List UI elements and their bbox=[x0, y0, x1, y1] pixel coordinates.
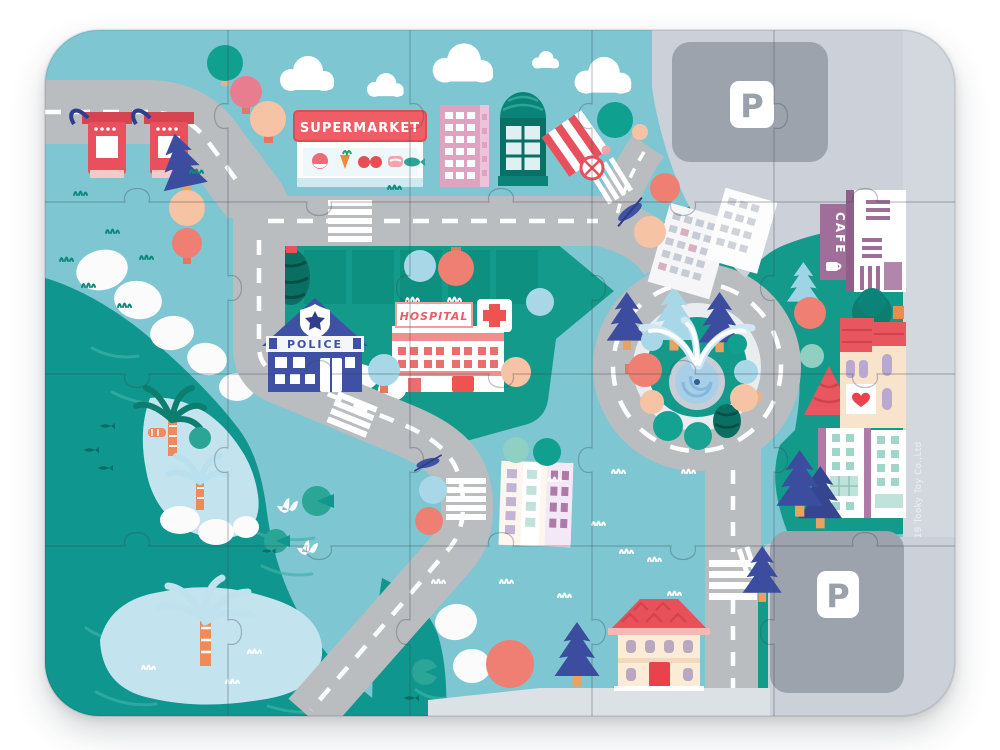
cafe-building: CAFE bbox=[820, 190, 906, 292]
tree-icon bbox=[503, 437, 529, 463]
apartment-building bbox=[498, 461, 573, 547]
parking-lot-bottom: P bbox=[758, 531, 957, 716]
dome-tower-building bbox=[498, 92, 548, 186]
cafe-sign-text: CAFE bbox=[833, 212, 847, 255]
tree-icon bbox=[438, 250, 474, 286]
city-map-puzzle: P © 2019 Tooky Toy Co.,Ltd P bbox=[0, 0, 1000, 750]
roundabout bbox=[607, 283, 781, 451]
tree-icon bbox=[794, 297, 826, 329]
tree-icon bbox=[650, 173, 680, 203]
tree-icon bbox=[404, 250, 436, 282]
puzzle-product-photo: P © 2019 Tooky Toy Co.,Ltd P bbox=[0, 0, 1000, 750]
tree-icon bbox=[169, 190, 205, 226]
tree-icon bbox=[501, 357, 531, 387]
tree-icon bbox=[858, 288, 886, 316]
house-door bbox=[649, 662, 670, 689]
tree-icon bbox=[419, 476, 447, 504]
tree-icon bbox=[189, 427, 211, 449]
tree-icon bbox=[597, 102, 633, 138]
tree-icon bbox=[526, 288, 554, 316]
police-sign-text: POLICE bbox=[287, 338, 343, 351]
supermarket-building: SUPERMARKET bbox=[294, 111, 426, 187]
red-cross-icon bbox=[477, 299, 512, 332]
tree-icon bbox=[207, 45, 243, 81]
tree-icon bbox=[634, 216, 666, 248]
tree-icon bbox=[250, 101, 286, 137]
tree-icon bbox=[533, 438, 561, 466]
hospital-door bbox=[452, 376, 474, 392]
bench-icon bbox=[893, 306, 904, 319]
log-icon bbox=[148, 428, 166, 437]
tree-icon bbox=[368, 354, 400, 386]
tree-icon bbox=[800, 344, 824, 368]
tree-icon bbox=[632, 124, 648, 140]
tree-icon bbox=[415, 507, 443, 535]
supermarket-sign-text: SUPERMARKET bbox=[300, 121, 420, 136]
tree-icon bbox=[486, 640, 534, 688]
parking-bottom-sign-text: P bbox=[826, 577, 849, 615]
pink-tower-building bbox=[440, 105, 489, 187]
tree-icon bbox=[172, 228, 202, 258]
parking-top-sign-text: P bbox=[740, 87, 763, 125]
tree-icon bbox=[230, 76, 262, 108]
